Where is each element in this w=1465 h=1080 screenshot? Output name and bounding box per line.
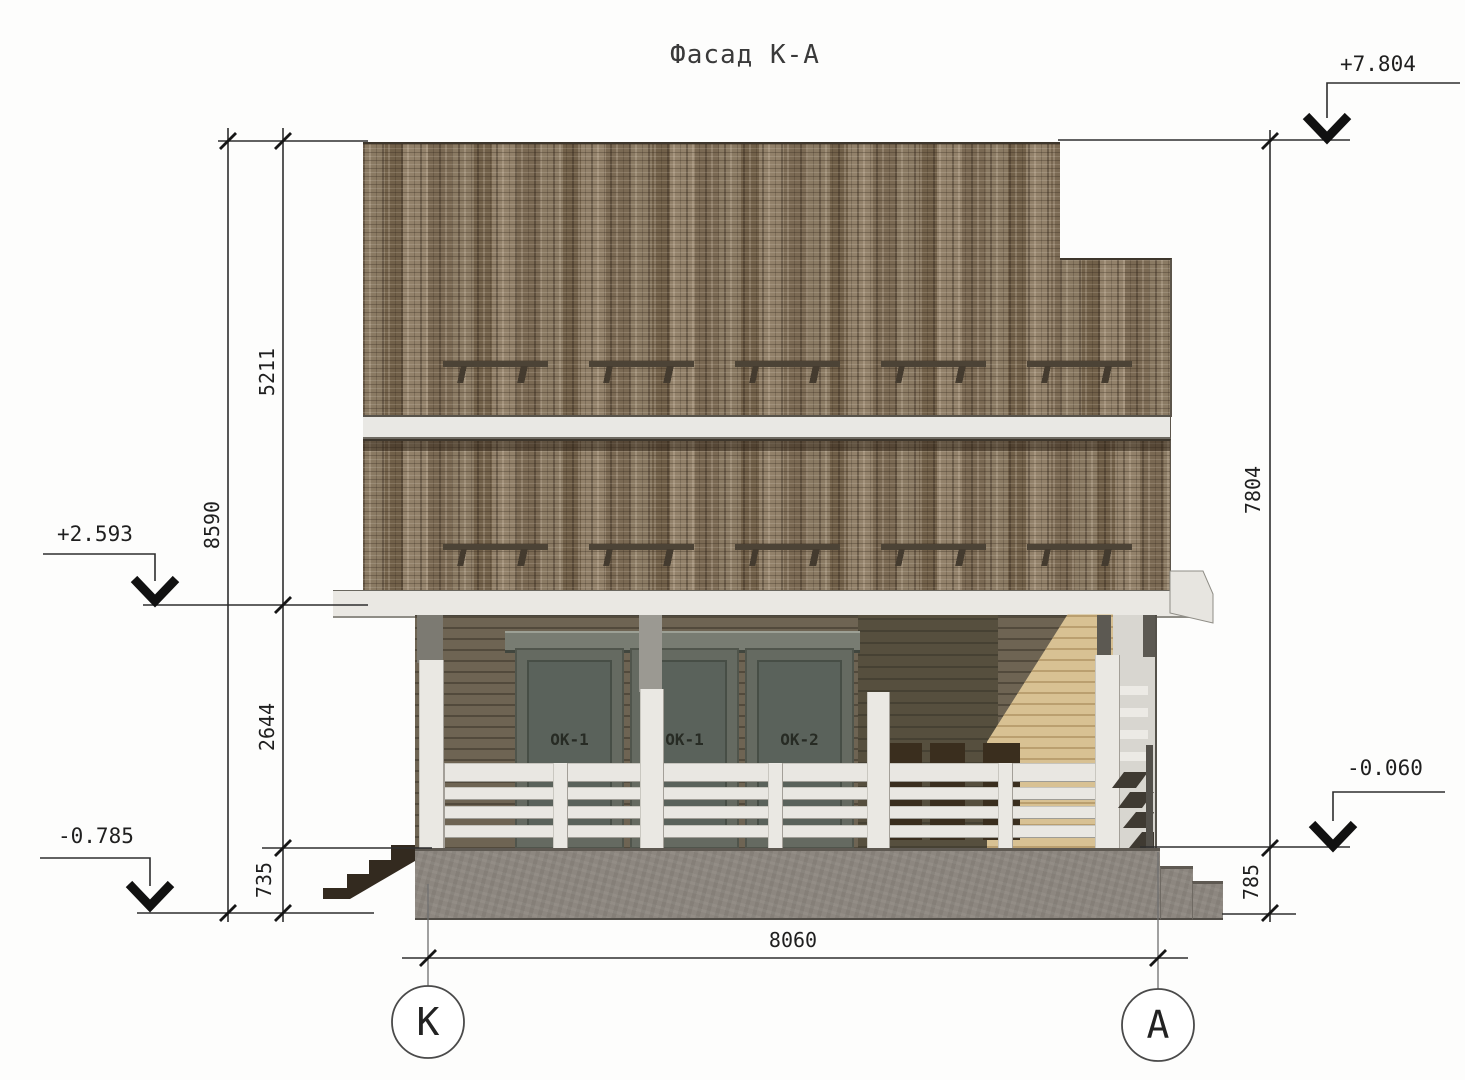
leader-ground-left xyxy=(40,858,150,886)
leader-terrace xyxy=(1333,792,1445,821)
leader-roof-top xyxy=(1327,83,1460,118)
dim-left-upper: 5211 xyxy=(255,337,279,407)
dim-right-lower: 785 xyxy=(1239,847,1263,917)
elevation-arrow-second-floor xyxy=(134,579,176,601)
eave-end-piece xyxy=(1170,571,1213,623)
dim-left-total: 8590 xyxy=(200,490,224,560)
axis-label-a: А xyxy=(1118,1003,1198,1047)
dim-bottom-width: 8060 xyxy=(718,928,868,952)
drawing-title: Фасад К-А xyxy=(595,40,895,70)
elevation-value-roof-top: +7.804 xyxy=(1340,52,1416,76)
dim-left-lower: 735 xyxy=(252,845,276,915)
dim-left-middle: 2644 xyxy=(255,692,279,762)
dim-right-total: 7804 xyxy=(1241,455,1265,525)
stair-edge-strip xyxy=(1146,745,1153,848)
elevation-value-terrace: -0.060 xyxy=(1347,756,1423,780)
elevation-value-second-floor: +2.593 xyxy=(57,522,133,546)
elevation-arrow-roof-top xyxy=(1306,116,1348,138)
facade-drawing-canvas: ОК-1 ОК-1 ОК-2 xyxy=(0,0,1465,1080)
elevation-arrow-ground-left xyxy=(129,884,171,906)
elevation-value-ground-left: -0.785 xyxy=(58,824,134,848)
left-entrance-steps xyxy=(323,845,415,899)
elevation-arrow-terrace xyxy=(1312,824,1354,846)
axis-label-k: К xyxy=(388,1000,468,1044)
